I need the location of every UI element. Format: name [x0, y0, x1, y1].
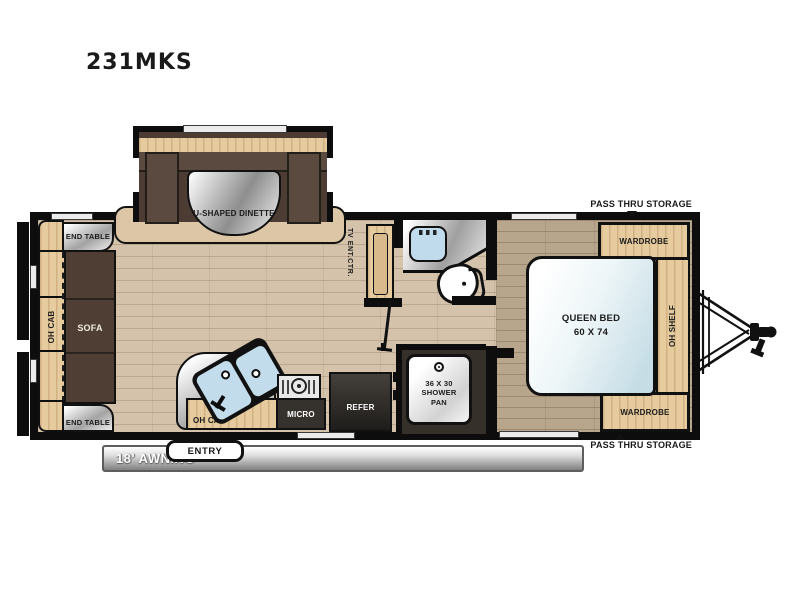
entry-text: ENTRY: [169, 447, 241, 457]
cabinet-divider: [40, 296, 64, 298]
oh-cab-left-label: OH CAB: [48, 311, 56, 344]
window: [133, 158, 139, 192]
hitch-icon: [697, 282, 777, 382]
door-handle: [381, 343, 384, 351]
wardrobe-top: WARDROBE: [598, 222, 690, 260]
dinette-bench-right: [287, 152, 321, 224]
end-table-bottom: END TABLE: [62, 404, 114, 432]
window: [512, 214, 576, 219]
drain-icon: [434, 362, 444, 372]
end-table-label: END TABLE: [64, 419, 112, 427]
shower-label: 36 X 30 SHOWER PAN: [409, 379, 469, 407]
window: [500, 432, 578, 437]
corner-cabinet: [38, 220, 64, 252]
refer-label: REFER: [331, 404, 390, 412]
end-table-label: END TABLE: [64, 233, 112, 241]
burner-icon: [291, 378, 307, 394]
microwave: MICRO: [276, 398, 326, 430]
oh-cab-dashed-edge: [62, 252, 64, 402]
tv-panel: [373, 233, 388, 295]
faucet-icon: [419, 230, 437, 235]
queen-bed: QUEEN BED 60 X 74: [526, 256, 656, 396]
wardrobe-label: WARDROBE: [603, 409, 687, 417]
arrow-up-icon: [615, 432, 625, 440]
bath-sink: [409, 226, 447, 262]
tv-ent-ctr-label-wrap: TV ENT.CTR.: [346, 228, 360, 314]
cooktop: [277, 374, 321, 400]
tv-cabinet: [366, 224, 394, 302]
shower-pan: 36 X 30 SHOWER PAN: [406, 354, 472, 425]
wardrobe-label: WARDROBE: [601, 238, 687, 246]
wall: [364, 298, 402, 307]
sofa-label: SOFA: [66, 324, 114, 333]
page-title: 231MKS: [86, 52, 193, 74]
shower-hinge: [393, 372, 400, 382]
arrow-down-icon: [627, 211, 637, 219]
pass-thru-storage-label-top: PASS THRU STORAGE: [552, 200, 692, 209]
floorplan: 231MKS U-SHAPED DINETTE: [0, 0, 800, 600]
sofa: SOFA: [64, 250, 116, 404]
dinette-slideout: U-SHAPED DINETTE: [133, 126, 333, 222]
wall: [497, 348, 514, 358]
cooktop-grate: [282, 380, 290, 394]
toilet-drain: [461, 282, 466, 287]
entry-label: ENTRY: [166, 440, 244, 462]
wall: [394, 220, 403, 248]
rear-bumper: [17, 352, 29, 436]
corner-cabinet: [38, 400, 64, 432]
sofa-cushion-line: [66, 352, 114, 354]
wall: [486, 346, 497, 434]
window: [52, 214, 92, 219]
end-table-top: END TABLE: [62, 222, 114, 252]
oh-shelf: OH SHELF: [656, 258, 690, 394]
sofa-cushion-line: [66, 298, 114, 300]
drain-icon: [219, 369, 231, 381]
window: [31, 266, 36, 288]
cooktop-grate: [308, 380, 316, 394]
wall: [452, 296, 496, 305]
wardrobe-bottom: WARDROBE: [600, 392, 690, 432]
dinette-label: U-SHAPED DINETTE: [189, 210, 279, 218]
window: [298, 433, 354, 438]
window: [184, 126, 286, 132]
refrigerator: REFER: [329, 372, 392, 432]
micro-label: MICRO: [278, 411, 324, 419]
wall: [486, 218, 497, 280]
tv-ent-ctr-label: TV ENT.CTR.: [346, 228, 353, 277]
shower-hinge: [393, 390, 400, 400]
window: [31, 360, 36, 382]
queen-bed-label: QUEEN BED 60 X 74: [529, 259, 653, 393]
cabinet-divider: [40, 350, 64, 352]
rear-bumper: [17, 222, 29, 340]
oh-shelf-label: OH SHELF: [669, 305, 677, 347]
window: [327, 158, 333, 192]
dinette-bench-left: [145, 152, 179, 224]
drain-icon: [250, 367, 262, 379]
